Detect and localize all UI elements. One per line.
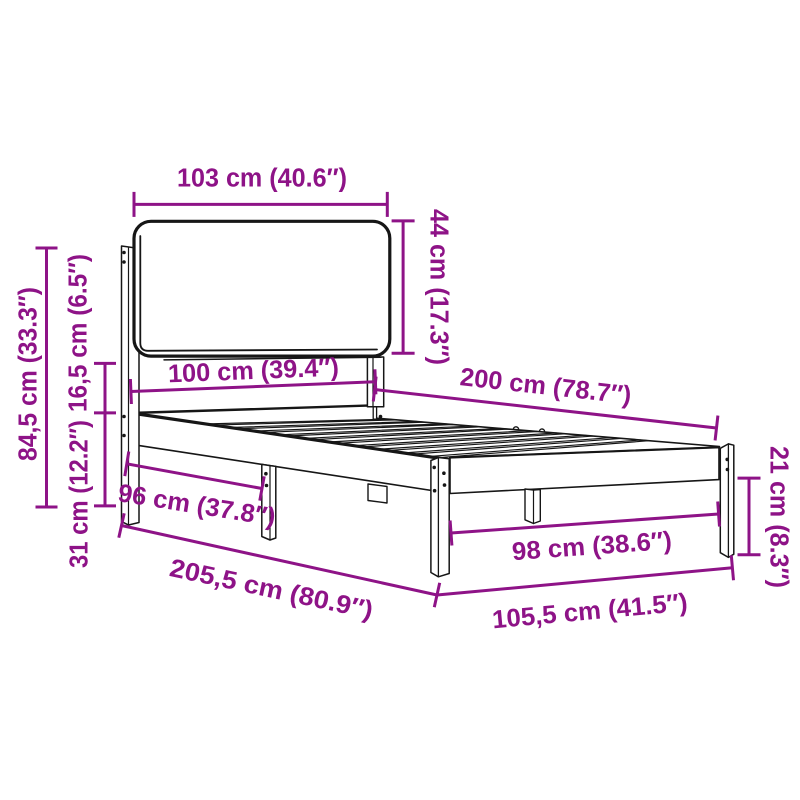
svg-text:31 cm (12.2″): 31 cm (12.2″) — [66, 420, 94, 568]
svg-text:84,5 cm (33.3″): 84,5 cm (33.3″) — [15, 287, 43, 461]
svg-text:21 cm (8.3″): 21 cm (8.3″) — [765, 446, 793, 588]
svg-text:16,5 cm (6.5″): 16,5 cm (6.5″) — [65, 254, 93, 412]
svg-text:44 cm (17.3″): 44 cm (17.3″) — [425, 209, 453, 365]
svg-text:103 cm (40.6″): 103 cm (40.6″) — [177, 165, 347, 193]
